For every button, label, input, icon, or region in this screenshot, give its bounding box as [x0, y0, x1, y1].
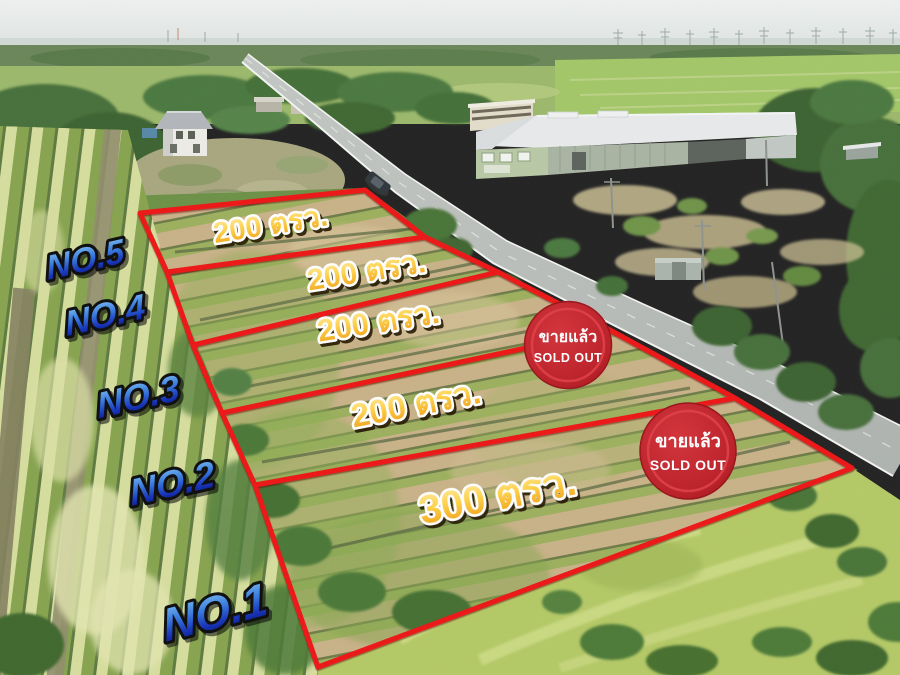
aerial-photo: 200 ตรว. 200 ตรว. 200 ตรว. 200 ตรว. 300 …	[0, 0, 900, 675]
aerial-photo-land-ad: 200 ตรว. 200 ตรว. 200 ตรว. 200 ตรว. 300 …	[0, 0, 900, 675]
photo-grain-overlay	[0, 0, 900, 675]
